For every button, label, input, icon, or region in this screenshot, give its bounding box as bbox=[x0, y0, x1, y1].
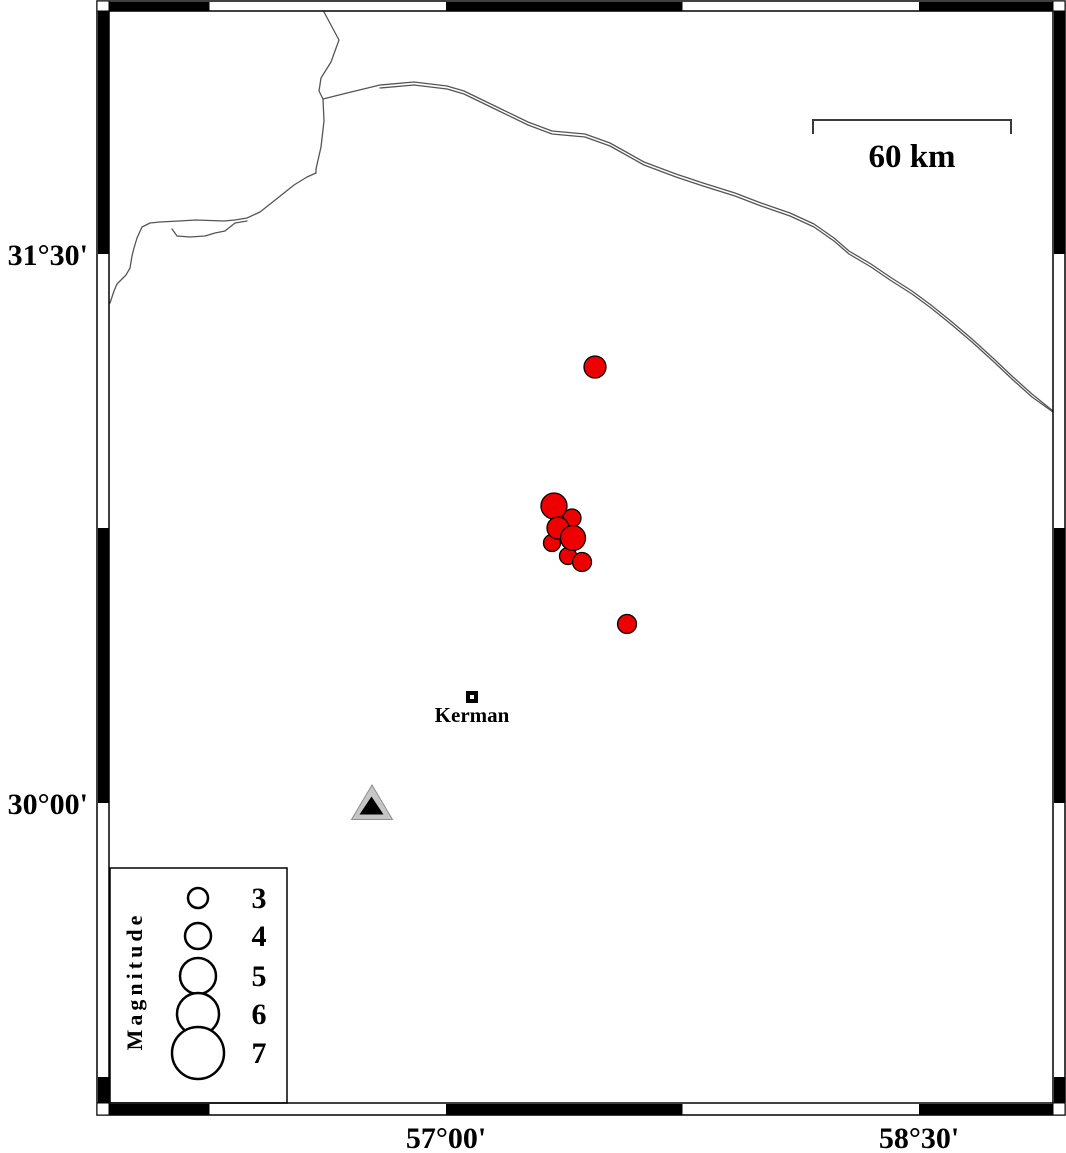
legend-magnitude-circle bbox=[185, 923, 211, 949]
magnitude-legend: Magnitude 34567 bbox=[110, 868, 287, 1103]
latitude-label: 31°30' bbox=[8, 239, 88, 272]
legend-magnitude-circle bbox=[172, 1027, 224, 1079]
scale-bar-bracket bbox=[813, 120, 1011, 134]
epicenter-circle bbox=[541, 493, 567, 519]
legend-magnitude-circle bbox=[180, 958, 216, 994]
longitude-label: 57°00' bbox=[406, 1122, 486, 1153]
legend-magnitude-label: 5 bbox=[252, 960, 267, 993]
city-marker-kerman: Kerman bbox=[435, 691, 510, 727]
legend-magnitude-label: 3 bbox=[252, 882, 267, 915]
station-triangle-marker bbox=[352, 785, 393, 820]
map-line-northeast-main bbox=[323, 82, 1053, 411]
scale-bar-label: 60 km bbox=[868, 139, 955, 175]
city-square-icon-center bbox=[470, 695, 474, 699]
map-line-southwest-main bbox=[110, 173, 316, 303]
scale-bar: 60 km bbox=[813, 120, 1011, 175]
legend-magnitude-circle bbox=[188, 888, 208, 908]
epicenter-circle bbox=[584, 356, 606, 378]
epicenter-circle bbox=[561, 526, 586, 551]
legend-magnitude-label: 4 bbox=[252, 920, 267, 953]
legend-magnitude-label: 7 bbox=[252, 1037, 267, 1070]
map-lines-layer bbox=[110, 12, 1053, 412]
seismicity-map: 60 km Kerman Magnitude 34567 bbox=[0, 0, 1066, 1153]
seismicity-map-figure: 60 km Kerman Magnitude 34567 bbox=[0, 0, 1066, 1153]
latitude-label: 30°00' bbox=[8, 788, 88, 821]
earthquake-layer bbox=[541, 356, 637, 634]
map-line-north-branch bbox=[316, 12, 339, 173]
epicenter-circle bbox=[573, 553, 592, 572]
epicenter-circle bbox=[618, 615, 637, 634]
legend-magnitude-label: 6 bbox=[252, 998, 267, 1031]
map-line-northeast-twin bbox=[380, 85, 1053, 412]
city-label: Kerman bbox=[435, 703, 510, 727]
longitude-label: 58°30' bbox=[879, 1122, 959, 1153]
map-line-southwest-twin bbox=[172, 221, 247, 237]
legend-title: Magnitude bbox=[122, 912, 147, 1051]
